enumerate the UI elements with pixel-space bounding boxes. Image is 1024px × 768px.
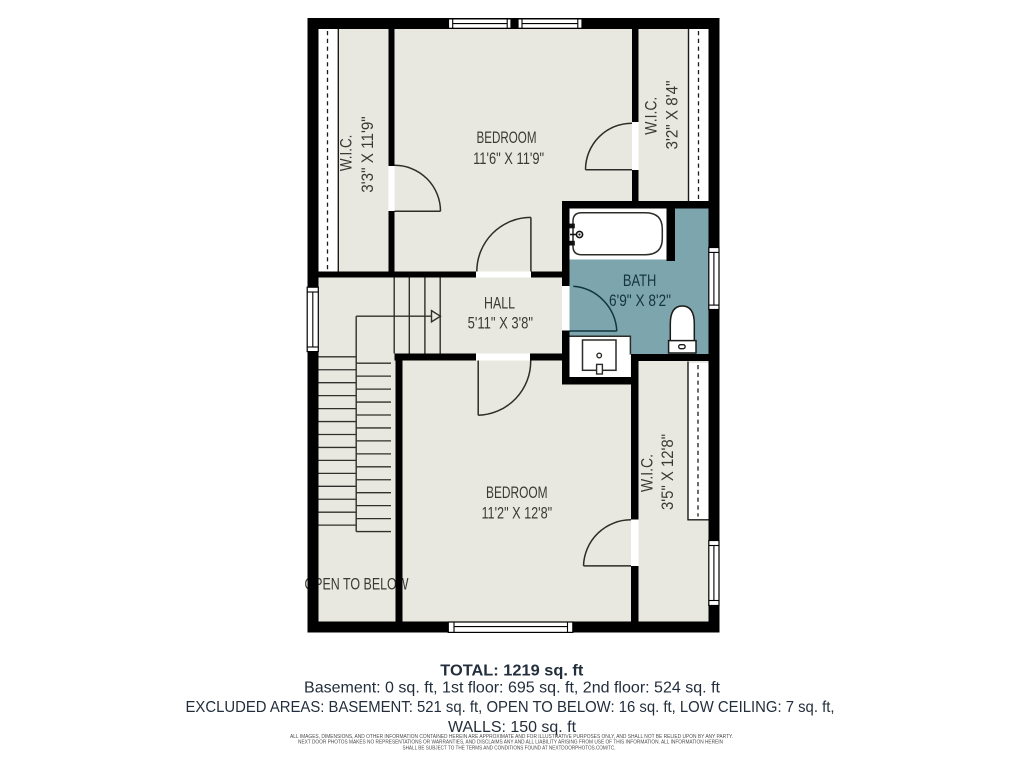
svg-text:OPEN TO BELOW: OPEN TO BELOW — [305, 575, 409, 593]
svg-text:BATH: BATH — [623, 272, 656, 290]
svg-text:3'5" X 12'8": 3'5" X 12'8" — [659, 434, 677, 510]
svg-text:11'2" X 12'8": 11'2" X 12'8" — [481, 505, 552, 523]
svg-text:5'11" X 3'8": 5'11" X 3'8" — [468, 315, 534, 333]
svg-text:HALL: HALL — [484, 295, 515, 313]
svg-text:EXCLUDED AREAS: BASEMENT: 521: EXCLUDED AREAS: BASEMENT: 521 sq. ft, OP… — [186, 699, 835, 716]
svg-text:11'6" X 11'9": 11'6" X 11'9" — [473, 150, 544, 168]
svg-text:3'3" X 11'9": 3'3" X 11'9" — [359, 116, 377, 193]
svg-text:3'2" X 8'4": 3'2" X 8'4" — [664, 80, 682, 149]
svg-text:6'9" X 8'2": 6'9" X 8'2" — [609, 292, 671, 310]
svg-text:Basement: 0 sq. ft, 1st floor:: Basement: 0 sq. ft, 1st floor: 695 sq. f… — [304, 680, 721, 697]
svg-text:BEDROOM: BEDROOM — [477, 129, 537, 147]
svg-text:TOTAL: 1219 sq. ft: TOTAL: 1219 sq. ft — [440, 663, 584, 680]
svg-text:W.I.C.: W.I.C. — [338, 135, 356, 172]
svg-text:W.I.C.: W.I.C. — [643, 97, 661, 135]
svg-text:BEDROOM: BEDROOM — [486, 484, 548, 502]
svg-text:SHALL BE SUBJECT TO THE TERMS: SHALL BE SUBJECT TO THE TERMS AND CONDIT… — [403, 746, 616, 752]
svg-text:W.I.C.: W.I.C. — [639, 454, 657, 492]
